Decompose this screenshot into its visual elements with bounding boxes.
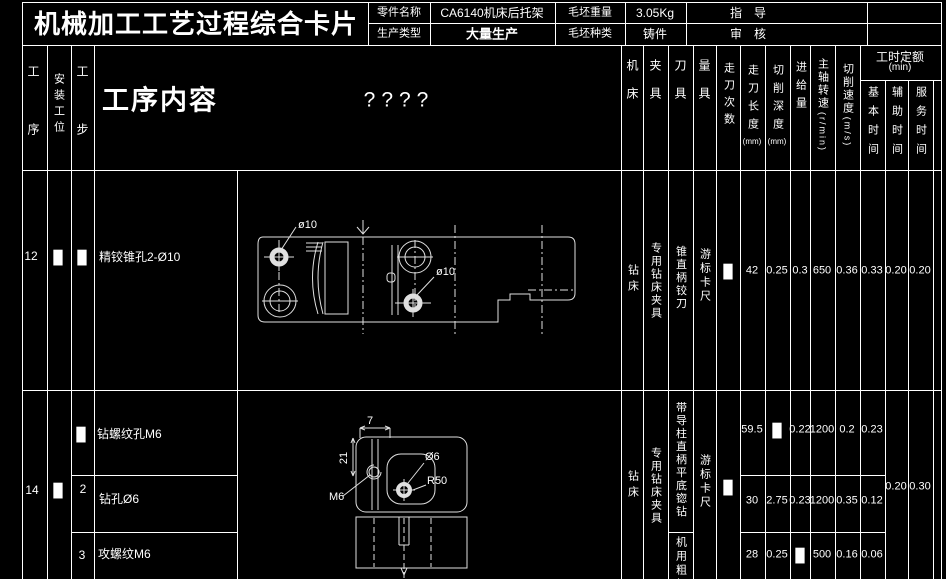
audit-label: 审 核 [730, 28, 766, 40]
row14-step3-cut-speed: 0.16 [836, 550, 857, 561]
row14-step1-pass-length: 59.5 [741, 425, 762, 436]
grid-line-vertical [668, 45, 669, 579]
grid-line-vertical [22, 2, 23, 579]
part-outline-top-view [356, 437, 467, 512]
row12-time-basic: 0.33 [861, 266, 882, 277]
row14-step3-content: 攻螺纹M6 [98, 548, 151, 560]
blank-weight-label: 毛坯重量 [568, 8, 612, 19]
hole-label-2: ø10 [436, 266, 455, 278]
grid-line-horizontal [668, 532, 693, 533]
grid-line-horizontal [860, 80, 941, 81]
cut-speed-label: 切削速度 [842, 63, 854, 115]
row14-step3-no: 3 [79, 549, 86, 561]
row14-step1-spindle: 1200 [810, 425, 834, 436]
row14-step2-no: 2 [80, 483, 87, 495]
row14-step1-cut-speed: 0.2 [839, 425, 854, 436]
process-card-canvas: 机械加工工艺过程综合卡片 零件名称 CA6140机床后托架 毛坯重量 3.05K… [0, 0, 946, 579]
row12-gauge: 游标卡尺 [699, 248, 710, 304]
row12-cut-speed: 0.36 [836, 266, 857, 277]
col-header-pass-length-unit: (mm) [743, 138, 762, 146]
thread-label: M6 [329, 491, 344, 503]
part-outline-front-view [356, 517, 467, 568]
row14-step1-feed: 0.22 [789, 425, 810, 436]
grid-line-horizontal [740, 475, 885, 476]
col-header-machine: 机床 [626, 59, 638, 115]
grid-line-vertical [740, 45, 741, 579]
col-header-tool: 刀具 [674, 59, 686, 115]
dim-width-label: 7 [367, 415, 373, 427]
row12-setup-mark: █ [53, 251, 62, 264]
row14-fixture: 专用钻床夹具 [650, 447, 661, 525]
row14-step2-spindle: 1200 [810, 496, 834, 507]
rib-arc-2 [318, 242, 323, 314]
row12-cut-depth: 0.25 [766, 266, 787, 277]
centerlines [279, 221, 575, 334]
blank-type-value: 铸件 [643, 28, 667, 40]
row12-process-no: 12 [24, 250, 37, 262]
cut-speed-unit: (m/s) [843, 117, 853, 148]
section-mark [357, 220, 369, 234]
row14-passes: █ [723, 481, 732, 494]
hole-label-1: ø10 [298, 219, 317, 231]
part-name-value: CA6140机床后托架 [440, 7, 543, 19]
grid-line-horizontal [22, 170, 941, 171]
bottom-mark [401, 568, 407, 575]
leader-r50 [413, 485, 426, 490]
row12-passes: █ [723, 265, 732, 278]
rib-outline [325, 242, 348, 314]
grid-line-vertical [908, 80, 909, 579]
radius-label: R50 [427, 475, 447, 487]
front-view-hidden-lines [374, 518, 431, 578]
col-header-cut-speed: 切削速度(m/s) [842, 63, 853, 148]
row14-time-aux: 0.20 [885, 482, 906, 493]
row14-step1-no: █ [76, 428, 85, 441]
row14-process-no: 14 [25, 484, 38, 496]
grid-line-horizontal [22, 2, 941, 3]
leader-2 [417, 277, 434, 295]
col-header-time-service: 服务时间 [915, 86, 926, 162]
row12-pass-length: 42 [746, 266, 758, 277]
grid-line-horizontal [740, 532, 885, 533]
grid-line-horizontal [22, 45, 941, 46]
row14-step2-cut-speed: 0.35 [836, 496, 857, 507]
grid-line-horizontal [22, 390, 941, 391]
row14-step3-pass-length: 28 [746, 550, 758, 561]
spindle-unit: (r/min) [818, 112, 828, 152]
bracket-tab [387, 273, 395, 282]
guide-label: 指 导 [730, 7, 766, 19]
row12-feed: 0.3 [792, 266, 807, 277]
card-title: 机械加工工艺过程综合卡片 [34, 11, 358, 37]
row14-step1-cut-depth: █ [772, 424, 781, 437]
row12-fixture: 专用钻床夹具 [650, 242, 661, 320]
grid-line-vertical [237, 170, 238, 579]
process-drawing-12: ø10 ø10 [240, 193, 605, 343]
col-header-passes: 走刀次数 [723, 62, 734, 130]
row14-step2-feed: 0.23 [789, 496, 810, 507]
dia-label: Ø6 [425, 451, 440, 463]
part-name-label: 零件名称 [377, 8, 421, 19]
dim-height-label: 21 [338, 452, 350, 464]
time-group-unit: (min) [876, 63, 924, 73]
col-header-content: 工序内容 [102, 88, 218, 115]
row14-step1-content: 钻螺纹孔M6 [97, 428, 162, 440]
col-header-unknown: ???? [364, 90, 435, 111]
production-type-label: 生产类型 [377, 29, 421, 40]
row14-step2-pass-length: 30 [746, 496, 758, 507]
grid-line-vertical [47, 45, 48, 579]
grid-line-vertical [621, 45, 622, 579]
grid-line-vertical [643, 45, 644, 579]
grid-line-vertical [941, 2, 942, 579]
row14-setup-mark: █ [53, 484, 62, 497]
row12-time-service: 0.20 [909, 266, 930, 277]
production-type-value: 大量生产 [466, 28, 518, 41]
row14-step3-cut-depth: 0.25 [766, 550, 787, 561]
col-header-gauge: 量具 [698, 59, 710, 115]
row12-spindle: 650 [813, 266, 831, 277]
blank-type-label: 毛坯种类 [568, 29, 612, 40]
grid-line-vertical [716, 45, 717, 579]
col-header-cut-depth: 切削深度 [772, 64, 783, 136]
grid-line-vertical [94, 45, 95, 579]
grid-line-horizontal [71, 532, 237, 533]
row14-gauge: 游标卡尺 [699, 454, 710, 510]
leader-1 [281, 227, 296, 250]
row14-tool-step3: 机用粗柄 [675, 536, 686, 579]
grid-line-vertical [71, 45, 72, 579]
rib-arc-1 [313, 242, 319, 314]
grid-line-horizontal [368, 23, 941, 24]
grid-line-vertical [885, 80, 886, 579]
col-header-time-aux: 辅助时间 [891, 86, 902, 162]
row14-time-service: 0.30 [909, 482, 930, 493]
grid-line-vertical [693, 45, 694, 579]
col-header-process: 工序 [27, 65, 39, 181]
spindle-label: 主轴转速 [817, 58, 829, 110]
col-header-spindle: 主轴转速(r/min) [817, 58, 828, 152]
row14-step3-time-basic: 0.06 [861, 550, 882, 561]
row12-step-mark: █ [77, 251, 86, 264]
col-header-step: 工步 [76, 65, 88, 181]
blank-weight-value: 3.05Kg [636, 7, 674, 19]
row14-step1-time-basic: 0.23 [861, 425, 882, 436]
col-header-fixture: 夹具 [649, 59, 661, 115]
col-header-cut-depth-unit: (mm) [768, 138, 787, 146]
row14-step2-time-basic: 0.12 [861, 496, 882, 507]
leader-d6 [408, 463, 424, 483]
row14-tool-steps12: 带导柱直柄平底锪钻 [675, 402, 686, 519]
col-header-pass-length: 走刀长度 [747, 64, 758, 136]
col-header-time-basic: 基本时间 [867, 86, 878, 162]
row12-time-aux: 0.20 [885, 266, 906, 277]
row12-content: 精铰锥孔2-Ø10 [99, 251, 180, 263]
row14-step3-spindle: 500 [813, 550, 831, 561]
col-header-time-group: 工时定额 (min) [876, 51, 924, 73]
col-header-setup: 安装工位 [53, 73, 64, 137]
row14-step2-content: 钻孔Ø6 [99, 493, 139, 505]
process-drawing-14: 7 21 M6 Ø6 R50 [325, 410, 485, 579]
row12-machine: 钻床 [627, 264, 638, 296]
col-header-feed: 进给量 [795, 61, 806, 115]
row14-step3-feed: █ [795, 549, 804, 562]
row14-step2-cut-depth: 2.75 [766, 496, 787, 507]
grid-line-horizontal [71, 475, 237, 476]
grid-line-vertical [933, 80, 934, 579]
row14-machine: 钻床 [627, 470, 638, 502]
row12-tool: 锥直柄铰刀 [675, 246, 686, 311]
